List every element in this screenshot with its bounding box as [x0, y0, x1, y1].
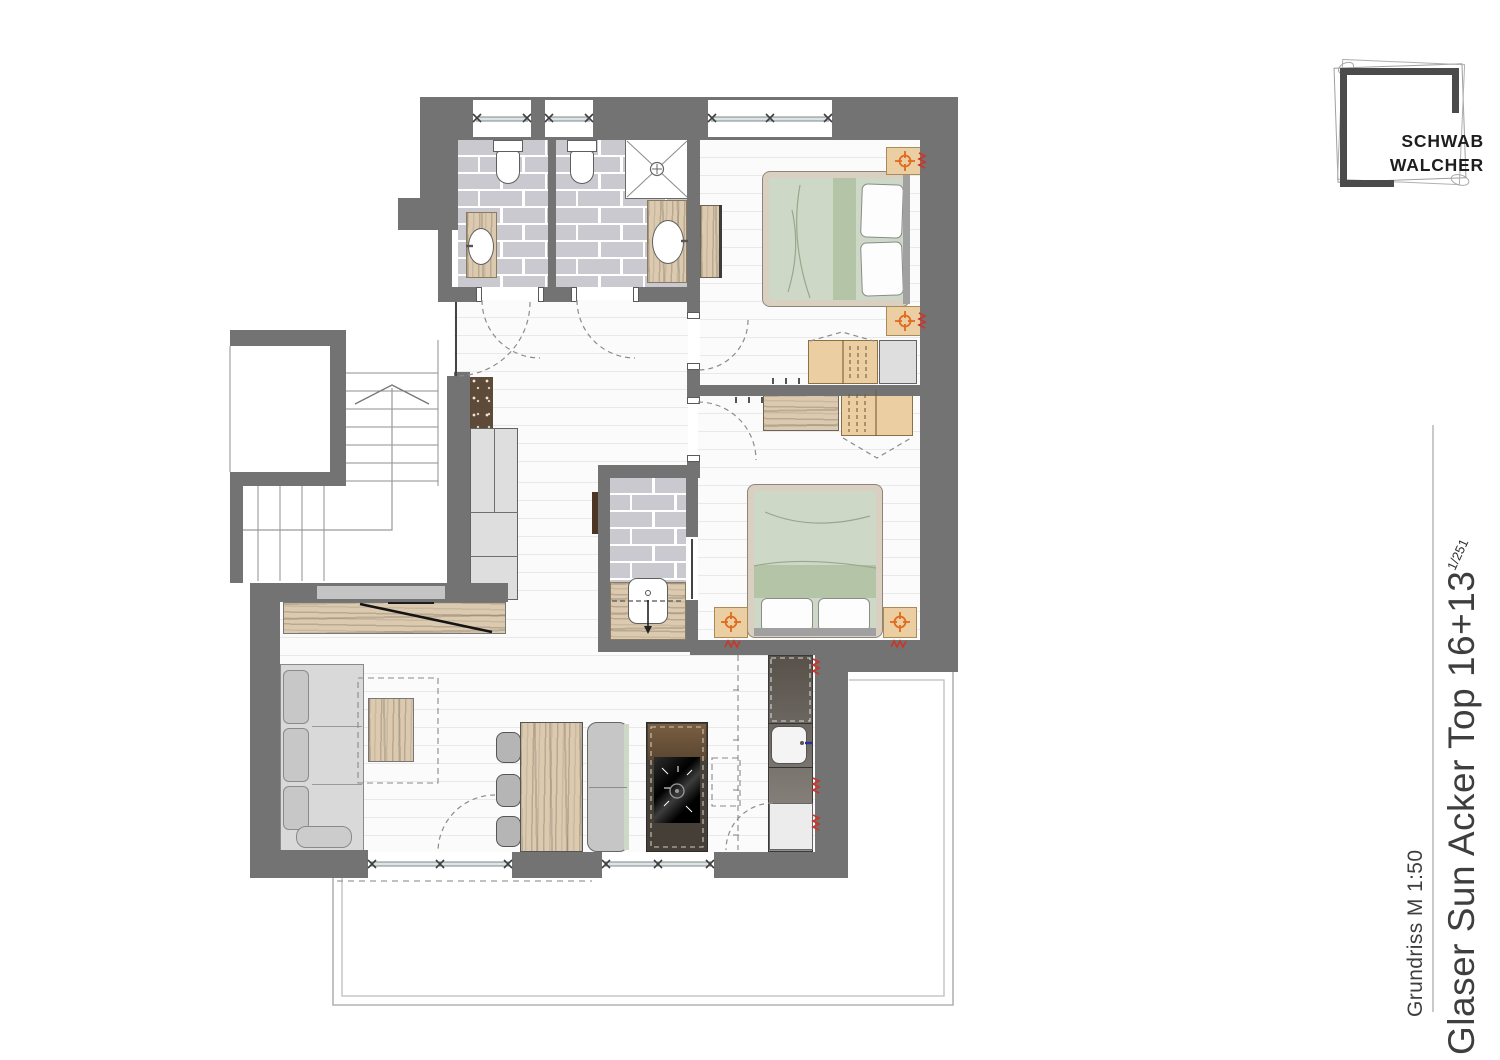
- ensuite-washbasin: [628, 578, 668, 624]
- sideboard-edge: [719, 205, 722, 278]
- counter-divider: [768, 723, 813, 724]
- bedroom1-wall: [687, 133, 700, 318]
- door-jamb: [476, 287, 482, 302]
- cabinet-divider: [494, 428, 495, 512]
- washbasin: [468, 228, 494, 265]
- door-jamb: [687, 397, 700, 404]
- ottoman: [296, 826, 352, 848]
- door-jamb: [571, 287, 577, 302]
- cabinet-divider: [470, 512, 518, 513]
- exterior-wall-bottom: [714, 852, 848, 878]
- project-title: Glaser Sun Acker Top 16+13: [1441, 495, 1483, 1055]
- entry-wall: [420, 140, 458, 198]
- wardrobe: [841, 390, 913, 436]
- logo-text-line1: SCHWAB: [1401, 131, 1484, 152]
- sofa-seam: [312, 726, 362, 727]
- cooktop: [654, 757, 700, 823]
- pillow: [860, 183, 904, 238]
- hall-divider-wall: [447, 372, 470, 602]
- headboard: [754, 628, 876, 636]
- ensuite-wall: [598, 478, 610, 652]
- entry-door-opening: [436, 302, 454, 376]
- exterior-wall-left-thin: [230, 486, 243, 583]
- logo-text-line2: WALCHER: [1390, 155, 1484, 176]
- cabinet-divider: [470, 556, 518, 557]
- toilet-bowl: [496, 151, 520, 184]
- nightstand: [886, 147, 924, 175]
- bench-sideboard: [283, 602, 506, 634]
- window: [545, 100, 593, 137]
- door-jamb: [687, 312, 700, 319]
- dresser: [763, 394, 839, 431]
- door-jamb: [538, 287, 544, 302]
- bedroom2-bottom-wall-thick: [815, 640, 958, 672]
- pillow: [818, 598, 870, 632]
- stool: [496, 774, 521, 807]
- window: [602, 852, 714, 876]
- bedroom-divider-wall: [690, 385, 920, 396]
- shower: [625, 139, 689, 199]
- entry-wall-notch: [398, 198, 458, 230]
- bathroom-wall: [635, 287, 688, 302]
- entry-door-leaf: [455, 302, 457, 376]
- nightstand: [883, 607, 917, 638]
- stair-walk-line: [243, 388, 392, 530]
- window: [708, 100, 832, 137]
- door-jamb: [633, 287, 639, 302]
- duvet-fold: [833, 178, 856, 300]
- sofa-cushion: [283, 728, 309, 782]
- terrace-door-window: [368, 852, 512, 876]
- ensuite-wall: [686, 600, 698, 640]
- glass-balustrade: [317, 586, 445, 599]
- bathroom-wall: [540, 287, 575, 302]
- door-jamb: [687, 455, 700, 462]
- ensuite-wall: [598, 465, 698, 478]
- drawing-scale-label: Grundriss M 1:50: [1404, 847, 1428, 1017]
- stairwell-wall: [230, 330, 346, 346]
- exterior-wall-lower-right: [815, 672, 848, 878]
- toilet-bowl: [570, 151, 594, 184]
- exterior-wall-right: [920, 140, 958, 652]
- entry-wall: [438, 230, 452, 302]
- stair-up-arrow: [355, 385, 429, 404]
- stool: [496, 816, 521, 847]
- sofa-seam: [312, 784, 362, 785]
- dining-table: [520, 722, 583, 852]
- bathroom-divider-wall: [548, 133, 556, 300]
- title-separator-line: [1432, 425, 1434, 1012]
- dishwasher: [769, 803, 813, 850]
- exterior-wall-left: [250, 583, 280, 878]
- stool: [496, 732, 521, 763]
- washbasin: [652, 220, 684, 264]
- coffee-table: [368, 698, 414, 762]
- window: [473, 100, 531, 137]
- bench-seam: [589, 787, 627, 788]
- stairwell-wall: [230, 472, 346, 486]
- stairwell-wall: [330, 346, 346, 472]
- nightstand: [714, 607, 748, 638]
- exterior-wall-bottom: [512, 852, 602, 878]
- floor-plan-sheet: Glaser Sun Acker Top 16+13 1/251 Grundri…: [0, 0, 1500, 1060]
- kitchen-sink: [771, 726, 807, 764]
- ensuite-door-leaf: [691, 539, 693, 599]
- pillow: [860, 241, 904, 296]
- ensuite-wall: [598, 640, 698, 652]
- ensuite-wall: [686, 478, 698, 537]
- island-wood-top: [648, 724, 706, 760]
- nightstand: [886, 306, 924, 336]
- door-jamb: [687, 363, 700, 370]
- headboard: [903, 174, 910, 304]
- ensuite-tile-floor: [610, 478, 686, 582]
- pillow: [761, 598, 813, 632]
- duvet-fold: [754, 565, 876, 598]
- wardrobe: [808, 340, 878, 384]
- logo: SCHWAB WALCHER: [1328, 52, 1498, 194]
- sofa-cushion: [283, 786, 309, 830]
- sofa-cushion: [283, 670, 309, 724]
- cabinet-box: [879, 340, 917, 384]
- counter-divider: [768, 767, 813, 768]
